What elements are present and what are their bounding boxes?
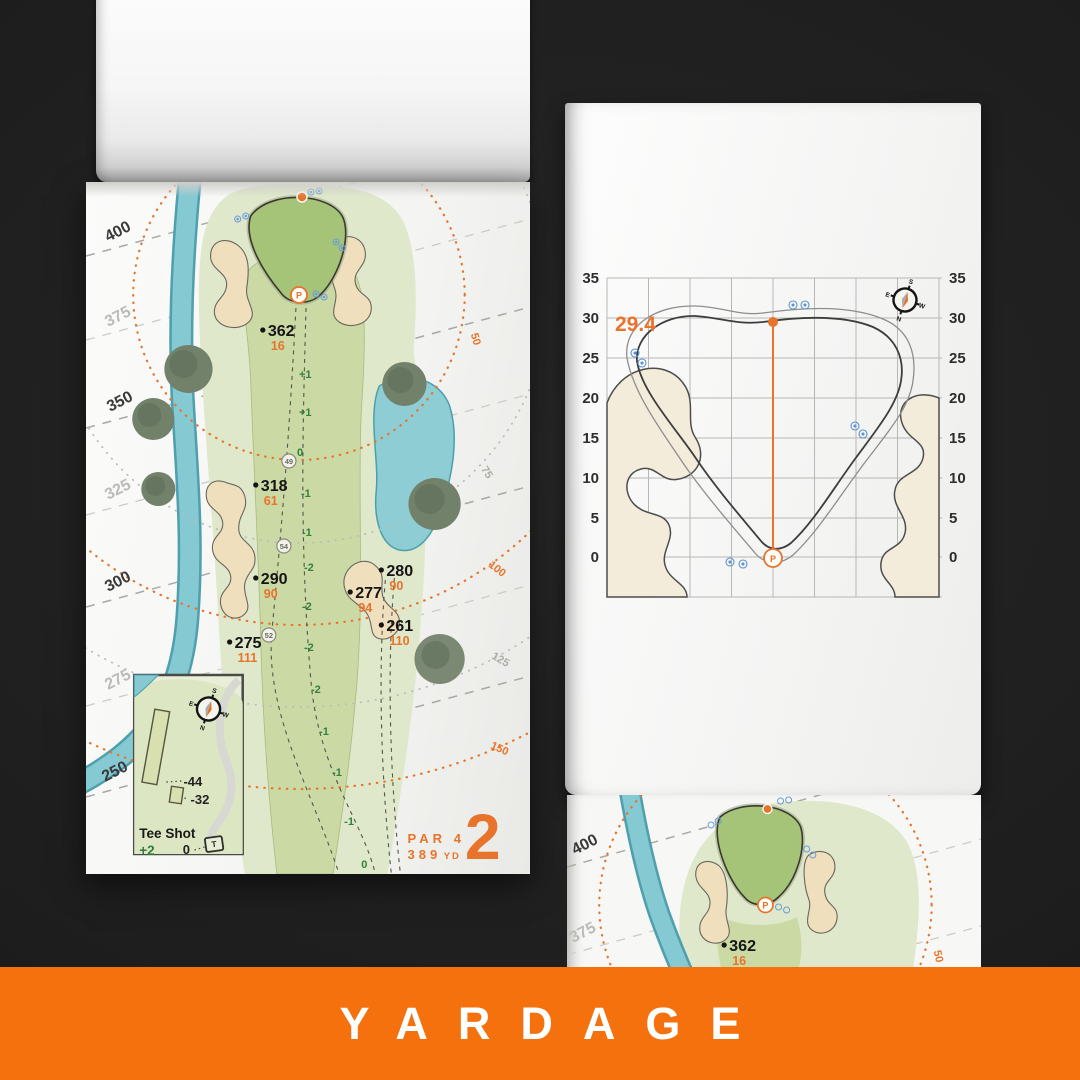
hole-map-page: 400 375 350 325 300 275 250 50 75 100 12… — [86, 182, 530, 874]
compass-n: N — [895, 315, 902, 323]
tee-offset-short: -32 — [190, 792, 209, 807]
tee-marker: T — [205, 836, 224, 852]
tee-offset-long: -44 — [183, 774, 203, 789]
tick-label: 15 — [582, 430, 599, 447]
front-label: 16 — [732, 954, 746, 968]
sprinkler-number: 49 — [285, 457, 293, 466]
elevation-label: -1 — [301, 488, 311, 500]
edge-label-375: 375 — [102, 302, 134, 330]
tee-box-short — [169, 786, 183, 804]
front-label: 111 — [238, 651, 258, 665]
carry-label: 261 — [386, 617, 413, 635]
carry-label: 362 — [729, 937, 756, 955]
tick-label: 5 — [949, 510, 957, 527]
tick-label: 20 — [949, 390, 966, 407]
elevation-label: -1 — [332, 767, 342, 779]
tick-label: 5 — [591, 510, 599, 527]
elevation-label: -2 — [302, 601, 312, 613]
pin-depth-value: 29.4 — [615, 313, 656, 336]
tick-label: 20 — [582, 390, 599, 407]
ring-label-75: 75 — [478, 464, 495, 481]
tick-label: 0 — [591, 549, 599, 566]
front-label: 94 — [358, 601, 372, 615]
hole-info: PAR 4 389 YD 2 — [407, 801, 500, 873]
pin-letter: P — [296, 291, 302, 301]
par-label: PAR 4 — [407, 831, 465, 846]
edge-label-400: 400 — [102, 217, 134, 245]
front-label: 61 — [264, 494, 278, 508]
edge-distance-labels: 400 375 350 325 300 275 250 — [99, 217, 136, 785]
tick-label: 30 — [582, 310, 599, 327]
elevation-label: -1 — [302, 527, 312, 539]
tick-label: 10 — [582, 470, 599, 487]
green-detail-page: P 29.4 35 30 25 20 15 10 5 0 35 30 25 20… — [565, 103, 981, 795]
edge-label-275: 275 — [102, 665, 134, 693]
ring-label-50: 50 — [931, 949, 945, 963]
flipped-blank-page — [96, 0, 530, 182]
yardage-book-scene: { "banner": { "label": "YARDAGE", "bg": … — [0, 0, 1080, 1080]
ring-label-100: 100 — [486, 559, 508, 580]
hole-number: 2 — [465, 801, 501, 873]
edge-label-375: 375 — [567, 918, 599, 946]
tick-label: 15 — [949, 430, 966, 447]
ring-label-50: 50 — [468, 332, 483, 347]
tick-label: 30 — [949, 310, 966, 327]
front-label: 90 — [264, 587, 278, 601]
yardage-banner: YARDAGE — [0, 967, 1080, 1080]
tick-label: 25 — [582, 350, 599, 367]
depth-axis-right: 35 30 25 20 15 10 5 0 — [949, 270, 966, 566]
carry-label: 275 — [235, 634, 262, 652]
front-label: 16 — [271, 339, 285, 353]
sprinkler-icon — [851, 422, 867, 438]
aim-dot — [763, 805, 772, 814]
carry-label: 280 — [386, 562, 413, 580]
edge-label-325: 325 — [102, 475, 134, 503]
front-label: 110 — [389, 634, 409, 648]
tee-zero: 0 — [183, 842, 190, 857]
pin-letter: P — [762, 901, 768, 911]
compass-s: S — [908, 278, 915, 286]
tick-label: 25 — [949, 350, 966, 367]
depth-axis-left: 35 30 25 20 15 10 5 0 — [582, 270, 599, 566]
tick-label: 35 — [949, 270, 966, 287]
tee-shot-inset: -44 -32 Tee Shot +2 0 T S N W E — [134, 675, 242, 858]
edge-label-400: 400 — [569, 830, 601, 858]
yards-unit: YD — [444, 851, 461, 862]
edge-label-300: 300 — [102, 567, 134, 595]
pin-marker: P — [291, 287, 307, 303]
elevation-label: 0 — [361, 859, 367, 871]
river — [629, 795, 685, 980]
aim-dot — [297, 192, 307, 202]
carry-label: 290 — [261, 570, 288, 588]
sprinkler-icon — [789, 301, 809, 309]
sprinkler-number: 54 — [280, 542, 289, 551]
pin-letter: P — [770, 554, 776, 564]
elevation-label: 0 — [297, 447, 303, 459]
tee-shot-title: Tee Shot — [139, 826, 196, 841]
green-chart-svg: P 29.4 35 30 25 20 15 10 5 0 35 30 25 20… — [565, 103, 981, 795]
pin-depth-line: P — [764, 317, 782, 567]
pin-marker: P — [758, 898, 773, 913]
sprinkler-icon — [726, 558, 747, 568]
carry-label: 318 — [261, 477, 288, 495]
elevation-label: -1 — [319, 726, 329, 738]
tick-label: 10 — [949, 470, 966, 487]
sprinkler-number: 52 — [265, 631, 273, 640]
ring-label-125: 125 — [489, 650, 511, 670]
elevation-label: +1 — [299, 369, 312, 381]
compass-w: W — [918, 302, 927, 311]
elevation-label: -2 — [304, 642, 314, 654]
green-edge-outline — [637, 316, 902, 549]
edge-label-350: 350 — [104, 387, 136, 415]
yards-label: 389 — [407, 847, 441, 862]
elevation-label: +1 — [299, 407, 312, 419]
front-label: 90 — [389, 579, 403, 593]
ring-label-150: 150 — [489, 740, 511, 758]
banner-title: YARDAGE — [310, 1001, 771, 1046]
elevation-label: -1 — [344, 816, 354, 828]
elevation-label: -2 — [311, 684, 321, 696]
ring-labels: 50 75 100 125 150 — [468, 332, 511, 759]
tick-label: 35 — [582, 270, 599, 287]
compass-e: E — [884, 291, 891, 299]
hole-map-svg: 400 375 350 325 300 275 250 50 75 100 12… — [86, 182, 530, 874]
carry-label: 362 — [268, 322, 295, 340]
carry-label: 277 — [355, 584, 382, 602]
tee-shot-elevation: +2 — [139, 843, 154, 858]
tick-label: 0 — [949, 549, 957, 566]
elevation-label: -2 — [304, 562, 314, 574]
